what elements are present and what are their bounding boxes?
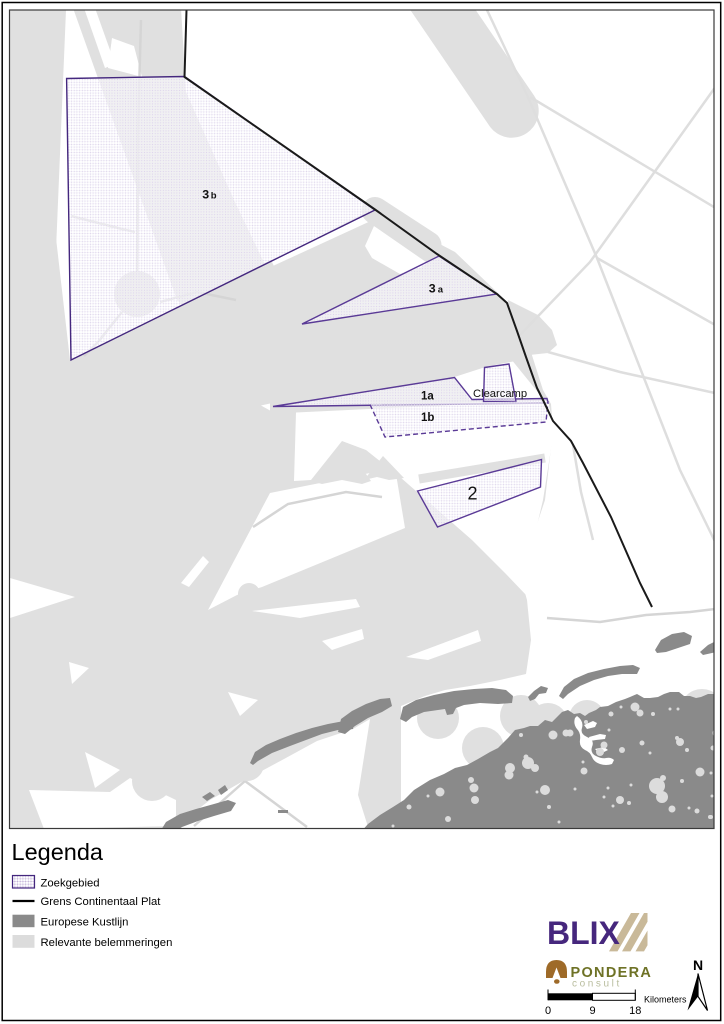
svg-text:1a: 1a [421, 391, 434, 403]
svg-text:Legenda: Legenda [12, 839, 104, 865]
svg-text:BLIX: BLIX [547, 915, 621, 951]
svg-text:Europese Kustlijn: Europese Kustlijn [41, 917, 129, 929]
svg-text:b: b [211, 190, 217, 201]
svg-text:0: 0 [545, 1005, 551, 1017]
svg-text:Zoekgebied: Zoekgebied [41, 878, 100, 890]
svg-text:Relevante belemmeringen: Relevante belemmeringen [41, 937, 173, 949]
svg-text:2: 2 [468, 484, 478, 504]
svg-text:18: 18 [629, 1005, 641, 1017]
svg-text:9: 9 [589, 1005, 595, 1017]
svg-text:Grens Continentaal Plat: Grens Continentaal Plat [41, 896, 162, 908]
svg-text:3: 3 [429, 282, 436, 296]
svg-text:1b: 1b [421, 412, 434, 424]
svg-text:Clearcamp: Clearcamp [473, 388, 527, 400]
svg-text:N: N [693, 957, 703, 973]
svg-text:a: a [438, 285, 444, 296]
svg-text:3: 3 [202, 188, 209, 202]
svg-text:consult: consult [572, 979, 622, 990]
svg-text:Kilometers: Kilometers [644, 995, 687, 1005]
